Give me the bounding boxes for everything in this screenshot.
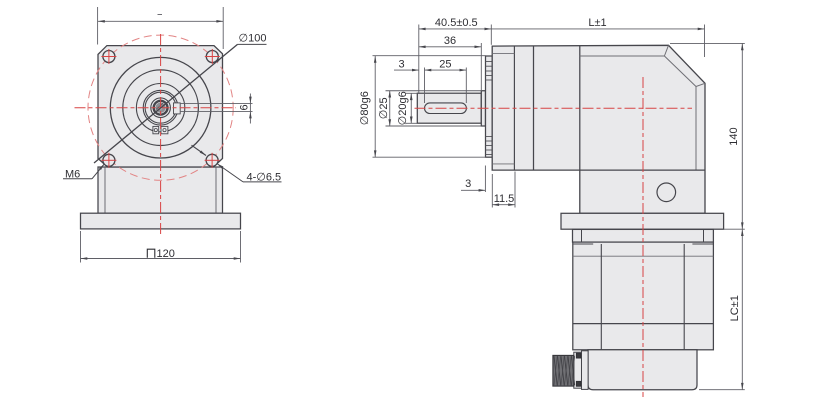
svg-text:∅25: ∅25 [378,97,390,119]
svg-text:∅100: ∅100 [239,33,267,45]
svg-text:3: 3 [465,178,471,190]
svg-text:L±1: L±1 [588,17,606,29]
svg-text:36: 36 [444,35,456,47]
svg-text:120: 120 [157,248,175,260]
svg-text:LC±1: LC±1 [729,295,741,321]
svg-text:3: 3 [398,59,404,71]
svg-text:∅20g6: ∅20g6 [397,91,409,125]
svg-text:∅80g6: ∅80g6 [359,91,371,125]
svg-text:40.5±0.5: 40.5±0.5 [435,17,478,29]
svg-text:140: 140 [728,127,740,145]
svg-text:25: 25 [439,59,451,71]
svg-text:11.5: 11.5 [494,193,515,205]
svg-text:6: 6 [238,104,250,110]
